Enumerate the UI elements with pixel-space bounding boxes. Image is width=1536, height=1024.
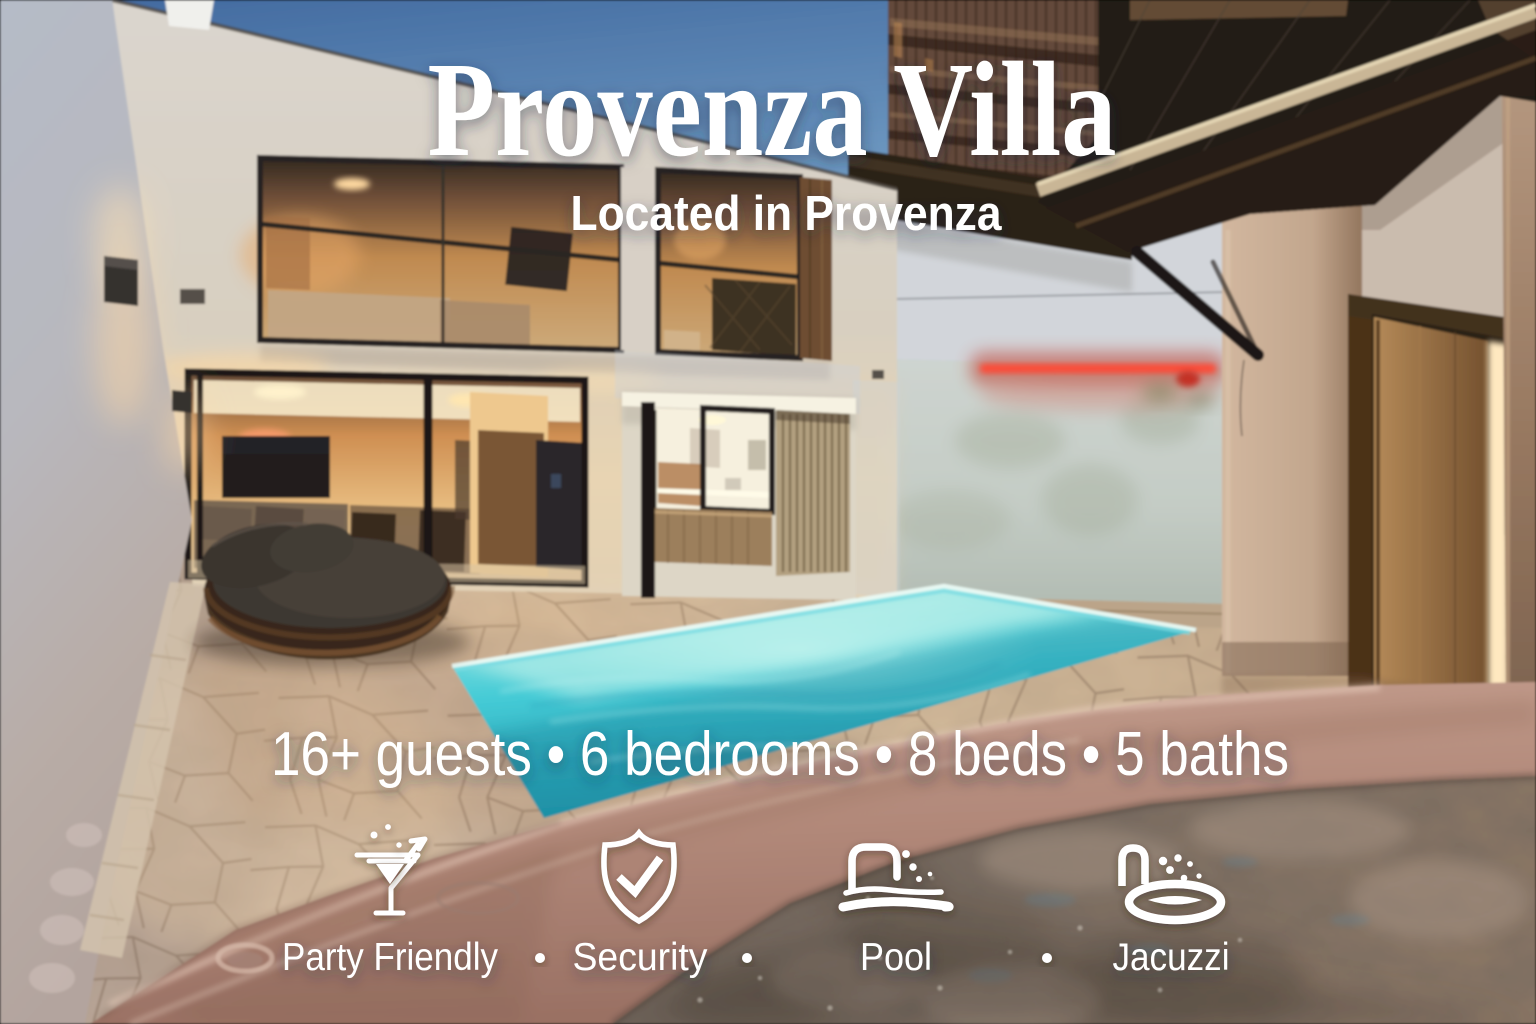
svg-text:Pool: Pool <box>860 936 932 979</box>
svg-text:Party Friendly: Party Friendly <box>282 936 498 979</box>
svg-text:Provenza Villa: Provenza Villa <box>428 35 1117 185</box>
svg-text:Located in Provenza: Located in Provenza <box>571 187 1003 241</box>
svg-text:16+ guests • 6 bedrooms • 8 be: 16+ guests • 6 bedrooms • 8 beds • 5 bat… <box>271 720 1289 789</box>
svg-text:Jacuzzi: Jacuzzi <box>1113 936 1230 979</box>
svg-text:Security: Security <box>573 936 708 979</box>
